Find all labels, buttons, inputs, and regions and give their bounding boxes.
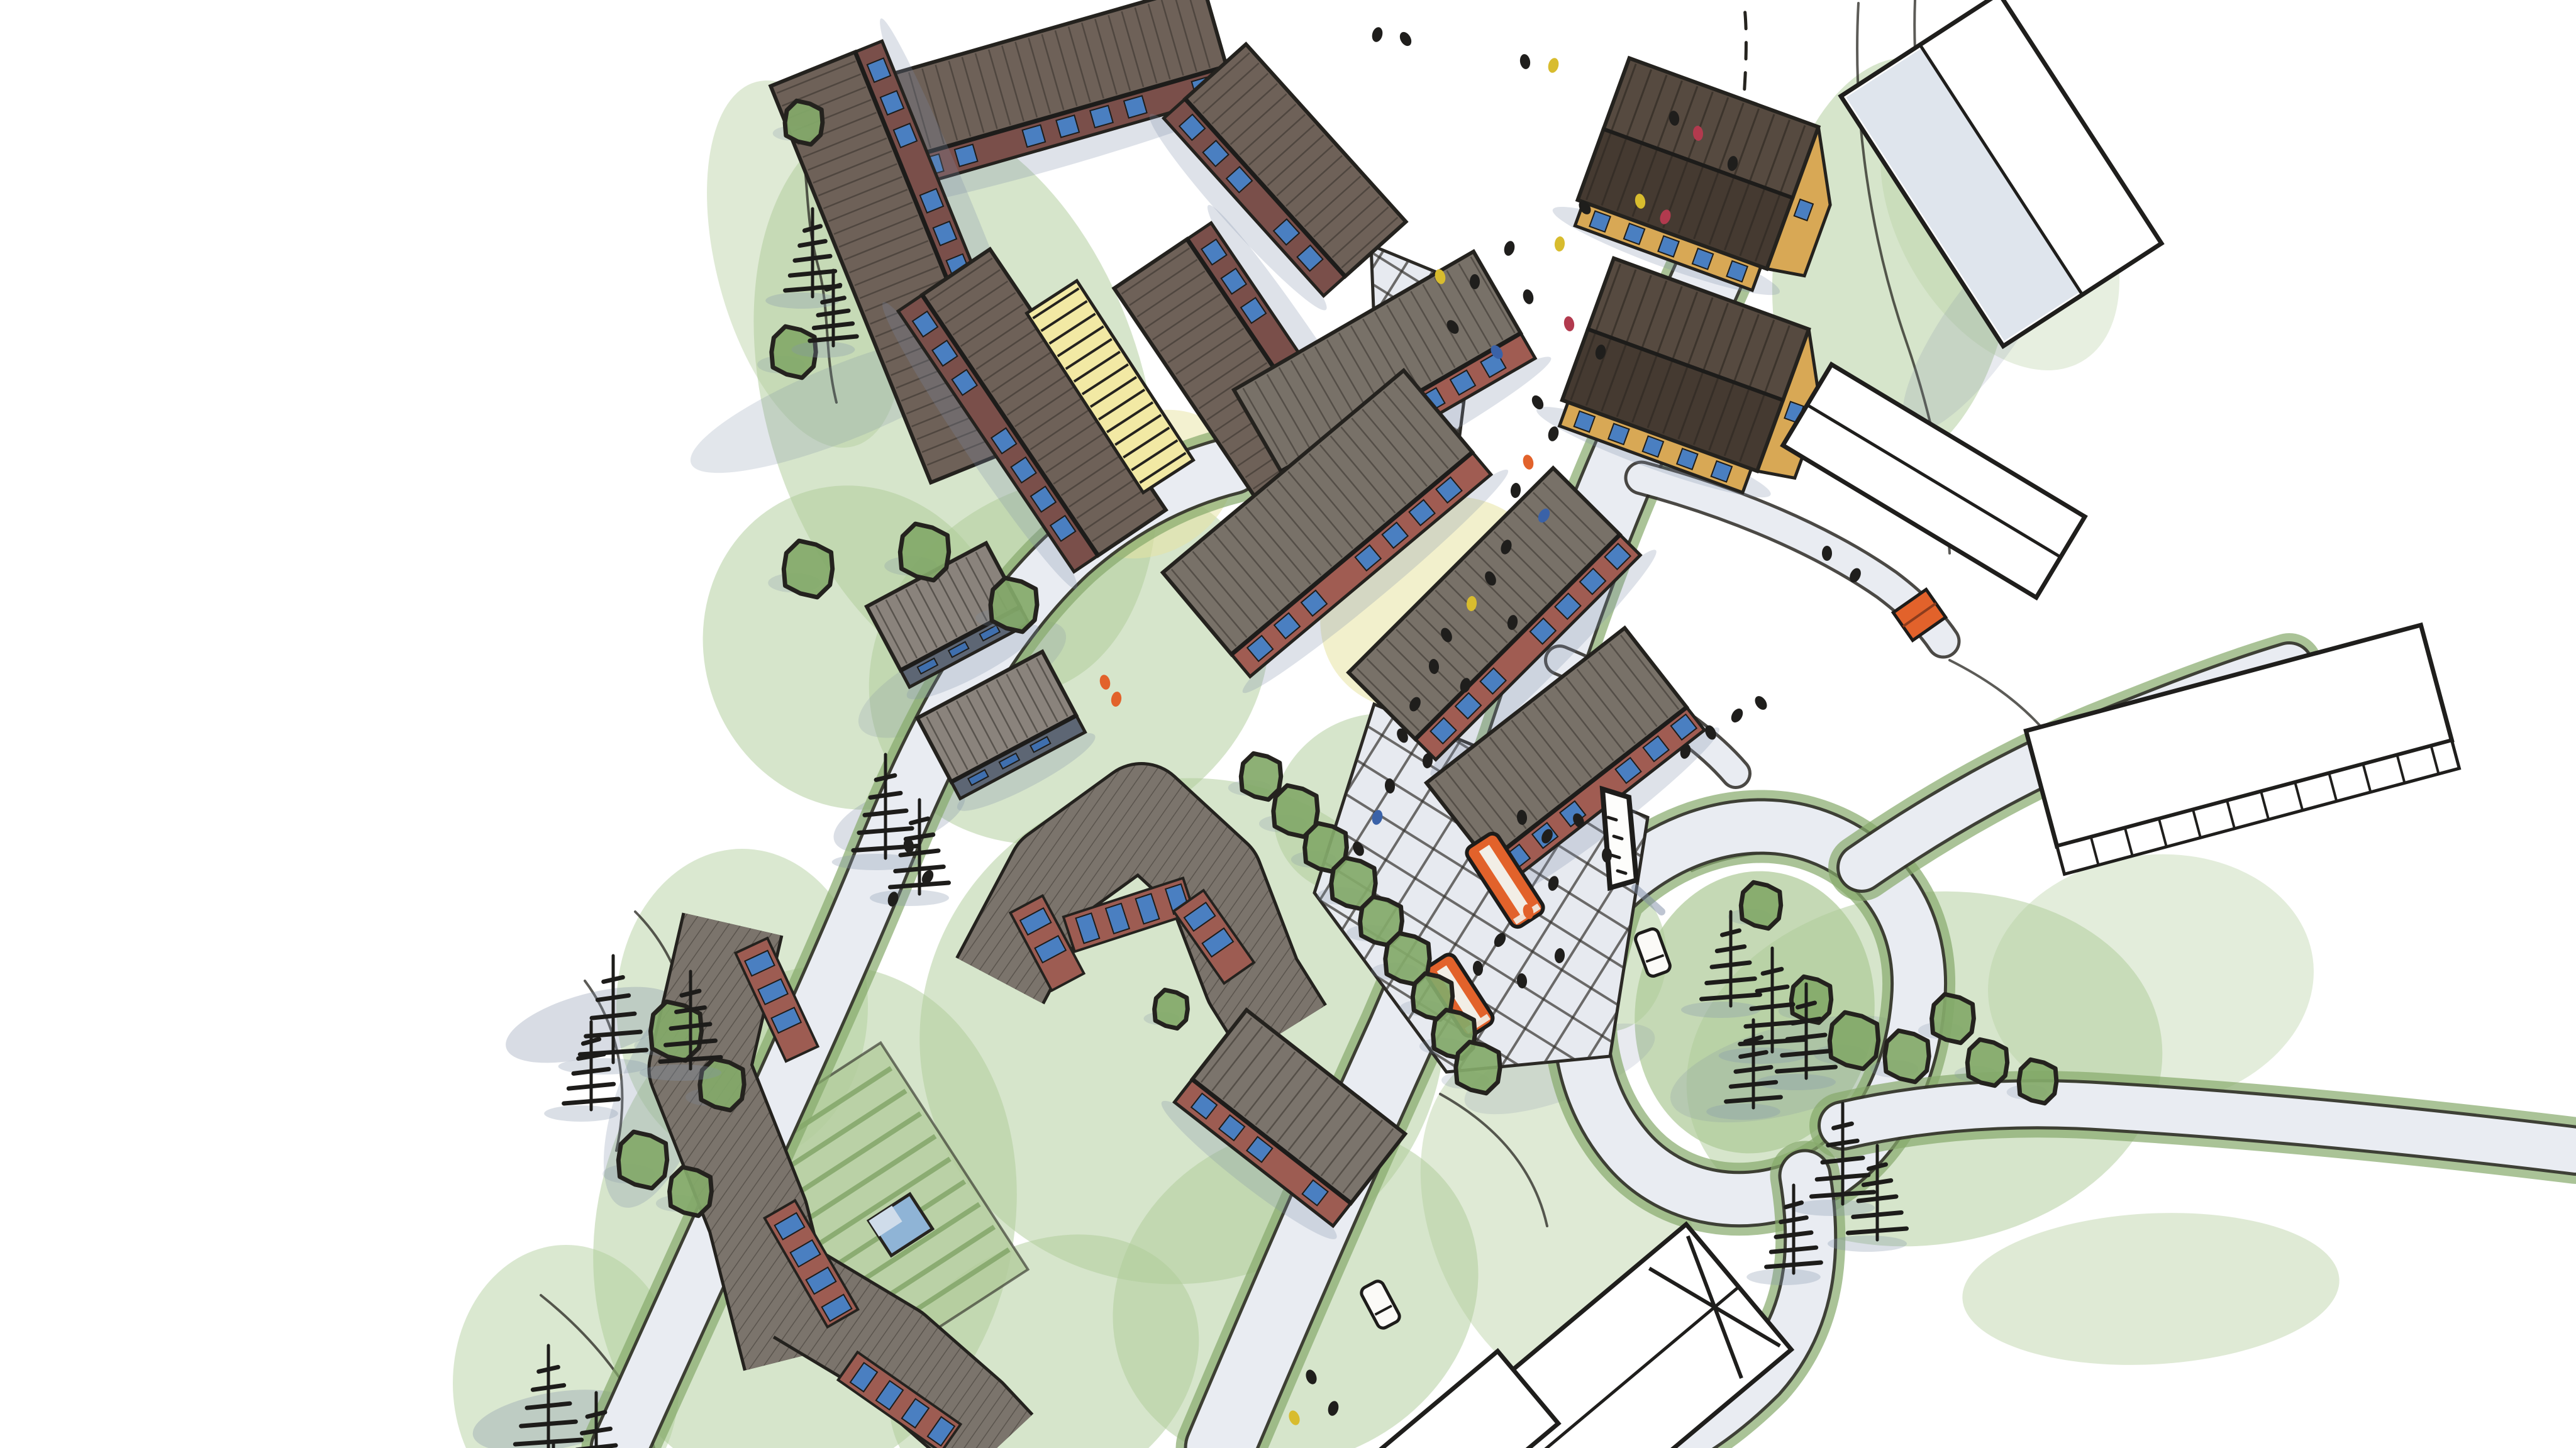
tree-canopy — [1791, 976, 1831, 1022]
tree-canopy — [670, 1167, 712, 1215]
tree-canopy — [1241, 753, 1280, 799]
tree-canopy — [618, 1132, 667, 1188]
tree-canopy — [785, 101, 823, 144]
tree-canopy — [1829, 1012, 1878, 1069]
tree-canopy — [784, 541, 832, 597]
tree-canopy — [1932, 994, 1974, 1042]
person-figure — [1602, 848, 1612, 863]
tree-canopy — [1967, 1039, 2007, 1085]
person-figure — [1521, 453, 1535, 470]
person-figure — [1546, 57, 1560, 74]
sketch-page — [0, 0, 2576, 1448]
person-figure — [1470, 274, 1480, 289]
person-figure — [1502, 240, 1516, 257]
grass-patch — [1958, 1203, 2343, 1374]
person-figure — [1563, 316, 1575, 332]
tree-canopy — [1885, 1031, 1929, 1082]
tree-canopy — [1741, 882, 1780, 928]
person-figure — [1397, 30, 1414, 48]
branch-whorl — [569, 1084, 613, 1088]
tree-canopy — [900, 524, 948, 580]
person-figure — [1519, 53, 1531, 70]
person-figure — [1822, 546, 1832, 561]
aerial-masterplan-sketch — [0, 0, 2576, 1448]
tree-canopy — [1155, 990, 1188, 1028]
person-figure — [1370, 26, 1384, 43]
person-figure — [1729, 707, 1745, 725]
person-figure — [1521, 288, 1535, 305]
person-figure — [1753, 694, 1770, 712]
tree-canopy — [2019, 1059, 2057, 1103]
tree-canopy — [1456, 1042, 1500, 1093]
person-figure — [1510, 482, 1521, 498]
person-figure — [1554, 236, 1565, 251]
branch-whorl — [564, 1099, 619, 1103]
tree-canopy — [991, 578, 1037, 632]
deciduous-tree — [1228, 753, 1281, 799]
